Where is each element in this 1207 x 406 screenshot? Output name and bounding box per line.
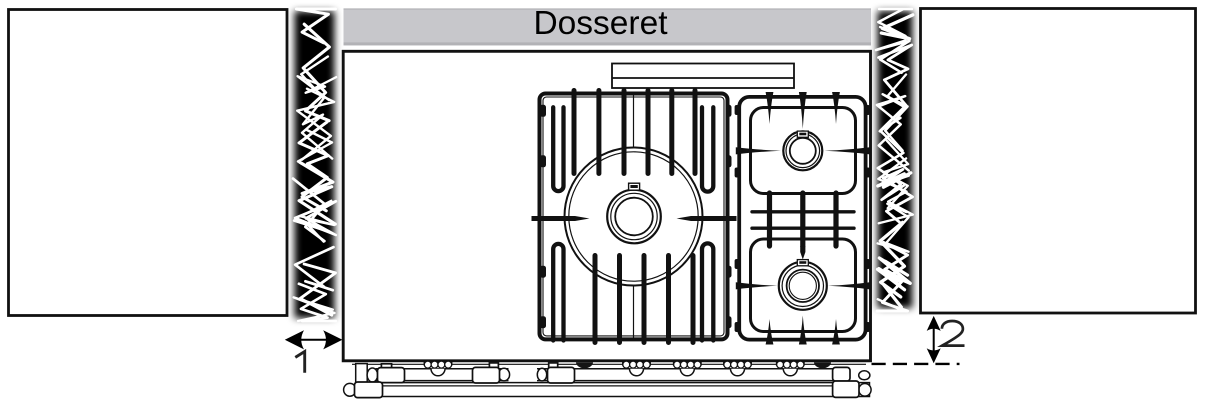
svg-text:Dosseret: Dosseret [533,5,668,42]
